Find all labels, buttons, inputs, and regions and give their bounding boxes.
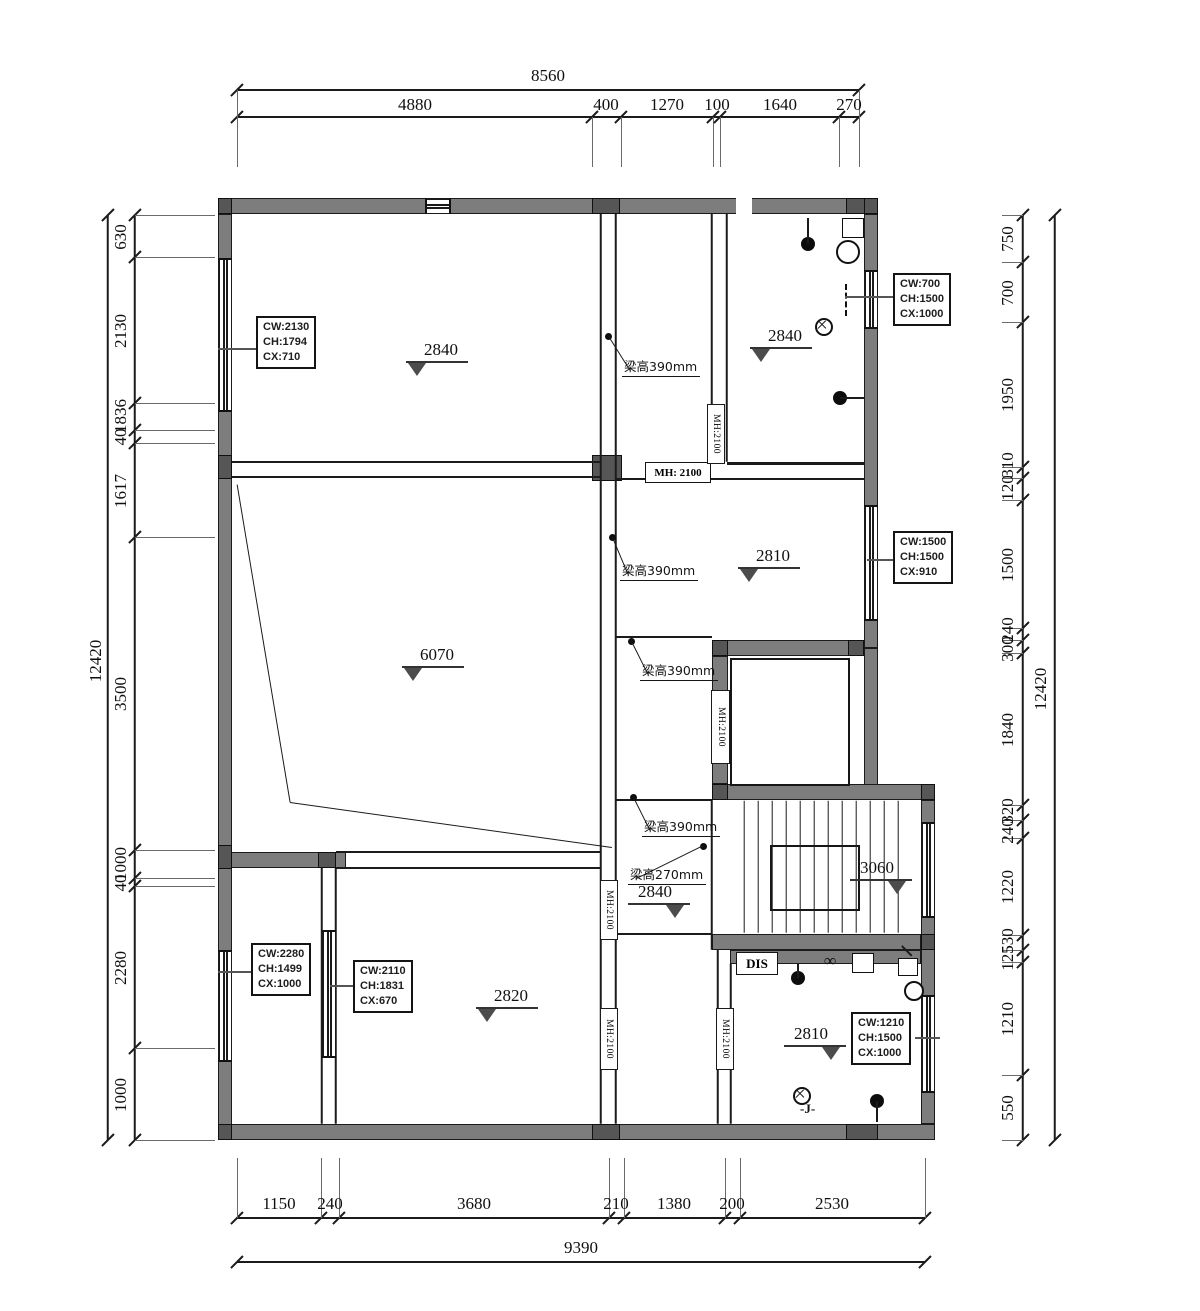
beam-height-label: 梁高270mm	[628, 864, 706, 885]
dim-line	[1022, 215, 1024, 1140]
window-line	[869, 272, 871, 327]
stair-tread	[827, 801, 828, 933]
window-spec-line: CH:1500	[900, 550, 946, 565]
door-height-label: MH:2100	[716, 1008, 734, 1070]
dis-label: DIS	[736, 952, 778, 975]
window-spec-line: CW:1500	[900, 535, 946, 550]
window-line	[427, 204, 449, 206]
window-line	[327, 932, 329, 1056]
window-line	[934, 997, 936, 1091]
window-spec-line: CW:1210	[858, 1016, 904, 1031]
level-marker: 2840	[628, 882, 690, 905]
window-line	[330, 932, 332, 1056]
stair-tread	[757, 801, 758, 933]
column	[848, 640, 864, 656]
elevator-shaft-inner	[730, 658, 850, 786]
window-line	[921, 997, 923, 1091]
column	[846, 1124, 878, 1140]
window-line	[926, 824, 928, 916]
window-spec-line: CX:1000	[900, 307, 944, 322]
level-value: 2810	[738, 546, 800, 569]
window-spec-line: CX:670	[360, 994, 406, 1009]
stair-landing	[770, 845, 860, 911]
j-label: -J-	[800, 1101, 815, 1117]
window-line	[877, 507, 879, 619]
door-height-label: MH:2100	[707, 404, 725, 464]
window-spec-line: CX:910	[900, 565, 946, 580]
level-triangle-icon	[478, 1009, 496, 1022]
column	[592, 1124, 620, 1140]
column	[318, 852, 336, 868]
dim-label: 700	[998, 253, 1018, 333]
stair-tread	[813, 801, 814, 933]
dim-line	[134, 215, 136, 1140]
dim-extension-line	[135, 215, 215, 216]
dim-label: 300	[998, 609, 1018, 689]
level-triangle-icon	[408, 363, 426, 376]
spec-leader-line	[218, 971, 251, 972]
wall-segment	[712, 784, 935, 800]
dim-label: 2280	[111, 928, 131, 1008]
light-stem	[797, 964, 799, 978]
level-triangle-icon	[404, 668, 422, 681]
window-line	[427, 207, 449, 209]
dim-label: 1840	[998, 690, 1018, 770]
beam-height-label: 梁高390mm	[622, 356, 700, 377]
dim-label: 40	[111, 843, 131, 923]
dim-line	[1054, 215, 1056, 1140]
dim-label: 1617	[111, 451, 131, 531]
level-value: 2810	[784, 1024, 846, 1047]
window	[322, 930, 336, 1058]
dim-label: 4880	[380, 95, 450, 115]
beam-height-label: 梁高390mm	[620, 560, 698, 581]
window-spec-line: CX:710	[263, 350, 309, 365]
window-line	[223, 260, 225, 410]
door-height-text: MH:2100	[720, 1019, 730, 1059]
window-line	[335, 932, 337, 1056]
dim-label: 400	[571, 95, 641, 115]
window-line	[218, 260, 220, 410]
dim-label: 3500	[111, 654, 131, 734]
dim-label: 630	[111, 197, 131, 277]
dim-label: 1640	[745, 95, 815, 115]
door-height-text: MH:2100	[604, 890, 614, 930]
door-height-text: MH:2100	[711, 414, 721, 454]
level-value: 3060	[850, 858, 912, 881]
dim-extension-line	[135, 878, 215, 879]
door-height-label: MH:2100	[711, 690, 730, 764]
level-value: 2840	[750, 326, 812, 349]
dim-label: 1950	[998, 355, 1018, 435]
bath-fixture	[852, 953, 874, 973]
spec-leader-line	[845, 296, 893, 297]
floor-plan-drawing: CW:2130CH:1794CX:710CW:700CH:1500CX:1000…	[0, 0, 1200, 1311]
wall-opening	[736, 198, 752, 214]
dim-label: 270	[814, 95, 884, 115]
bathroom-wall-line	[727, 462, 864, 465]
dim-label: 120	[998, 448, 1018, 528]
level-marker: 3060	[850, 858, 912, 881]
level-value: 2840	[628, 882, 690, 905]
window-line	[926, 997, 928, 1091]
window	[864, 505, 878, 621]
stair-tread	[743, 801, 744, 933]
window-line	[929, 997, 931, 1091]
level-marker: 2810	[784, 1024, 846, 1047]
dim-label: 100	[682, 95, 752, 115]
window-spec-line: CH:1500	[858, 1031, 904, 1046]
dim-label: 550	[998, 1068, 1018, 1148]
bath-fixture	[898, 958, 918, 976]
window-line	[921, 824, 923, 916]
dim-label: 1000	[111, 1055, 131, 1135]
column	[218, 1124, 232, 1140]
window-line	[427, 213, 449, 215]
dim-extension-line	[237, 117, 238, 167]
window-line	[223, 952, 225, 1060]
dim-extension-line	[237, 90, 238, 120]
window-line	[934, 824, 936, 916]
level-marker: 2810	[738, 546, 800, 569]
window-line	[929, 824, 931, 916]
wall-segment	[218, 198, 878, 214]
window-spec-line: CW:2110	[360, 964, 406, 979]
window-spec-line: CX:1000	[258, 977, 304, 992]
dim-extension-line	[839, 117, 840, 167]
partition-line	[600, 214, 602, 1124]
partition-line	[336, 851, 601, 853]
window-spec-box: CW:2110CH:1831CX:670	[353, 960, 413, 1013]
window-spec-line: CW:2130	[263, 320, 309, 335]
column	[218, 198, 232, 214]
dim-extension-line	[592, 117, 593, 167]
level-marker: 2840	[406, 340, 468, 363]
door-height-text: MH:2100	[716, 707, 726, 747]
dim-line	[237, 116, 859, 118]
window-spec-line: CW:2280	[258, 947, 304, 962]
dim-line	[237, 1261, 925, 1263]
dim-extension-line	[135, 1140, 215, 1141]
wall-segment	[218, 1124, 935, 1140]
light-stem	[876, 1101, 878, 1122]
window-spec-line: CH:1831	[360, 979, 406, 994]
column	[864, 198, 878, 214]
dim-extension-line	[925, 1158, 926, 1218]
dim-extension-line	[135, 443, 215, 444]
window	[921, 995, 935, 1093]
window-spec-box: CW:1500CH:1500CX:910	[893, 531, 953, 584]
dim-extension-line	[720, 117, 721, 167]
window-spec-line: CH:1794	[263, 335, 309, 350]
window-spec-box: CW:1210CH:1500CX:1000	[851, 1012, 911, 1065]
dim-line	[237, 89, 859, 91]
level-value: 6070	[402, 645, 464, 668]
dim-label: 3680	[439, 1194, 509, 1214]
dim-extension-line	[713, 117, 714, 167]
window	[218, 258, 232, 412]
dim-label: 2130	[111, 291, 131, 371]
dim-label: 9390	[536, 1238, 626, 1258]
wall-segment	[712, 934, 921, 950]
window	[218, 950, 232, 1062]
dim-extension-line	[859, 117, 860, 167]
stair-tread	[785, 801, 786, 933]
dim-extension-line	[135, 850, 215, 851]
dim-label: 12420	[86, 611, 106, 711]
column	[921, 784, 935, 800]
spec-leader-line	[330, 985, 353, 986]
beam-height-label: 梁高390mm	[640, 660, 718, 681]
window-line	[427, 198, 449, 200]
dim-extension-line	[135, 537, 215, 538]
level-value: 2820	[476, 986, 538, 1009]
window-line	[226, 260, 228, 410]
level-triangle-icon	[740, 569, 758, 582]
door-height-label: MH: 2100	[645, 462, 711, 483]
dim-extension-line	[135, 403, 215, 404]
level-triangle-icon	[666, 905, 684, 918]
wall-segment	[864, 648, 878, 800]
level-triangle-icon	[822, 1047, 840, 1060]
level-marker: 2820	[476, 986, 538, 1009]
window-line	[231, 260, 233, 410]
partition-line	[232, 476, 601, 478]
dim-line	[107, 215, 109, 1140]
dim-label: 200	[697, 1194, 767, 1214]
dim-extension-line	[135, 430, 215, 431]
window-spec-box: CW:700CH:1500CX:1000	[893, 273, 951, 326]
window-line	[231, 952, 233, 1060]
ceiling-diagonal-line	[236, 485, 290, 803]
dim-label: 2530	[797, 1194, 867, 1214]
level-marker: 2840	[750, 326, 812, 349]
light-stem	[807, 218, 809, 244]
dim-extension-line	[621, 117, 622, 167]
window-line	[322, 932, 324, 1056]
window-spec-box: CW:2130CH:1794CX:710	[256, 316, 316, 369]
dim-label: 240	[295, 1194, 365, 1214]
bath-fixture	[842, 218, 864, 238]
partition-line	[232, 461, 601, 463]
window-line	[218, 952, 220, 1060]
spec-leader-line	[867, 559, 893, 560]
washbasin-icon	[904, 981, 924, 1001]
window	[425, 198, 451, 214]
level-value: 2840	[406, 340, 468, 363]
dim-label: 8560	[503, 66, 593, 86]
column	[592, 198, 620, 214]
door-height-label: MH:2100	[600, 1008, 618, 1070]
ceiling-diagonal-line	[290, 802, 612, 848]
window-line	[864, 507, 866, 619]
dim-label: 1210	[998, 979, 1018, 1059]
window-spec-line: CH:1499	[258, 962, 304, 977]
level-marker: 6070	[402, 645, 464, 668]
window-line	[872, 507, 874, 619]
window-spec-line: CH:1500	[900, 292, 944, 307]
spec-leader-line	[915, 1037, 940, 1038]
window-line	[872, 272, 874, 327]
window-spec-box: CW:2280CH:1499CX:1000	[251, 943, 311, 996]
window-line	[869, 507, 871, 619]
dim-extension-line	[135, 257, 215, 258]
partition-line	[336, 867, 601, 869]
light-stem	[840, 397, 864, 399]
window-spec-line: CW:700	[900, 277, 944, 292]
column	[218, 455, 232, 479]
partition-line	[726, 214, 728, 462]
stair-tread	[799, 801, 800, 933]
dim-extension-line	[135, 886, 215, 887]
window	[864, 270, 878, 329]
dim-label: 12420	[1031, 639, 1051, 739]
column	[712, 640, 728, 656]
beam-height-label: 梁高390mm	[642, 816, 720, 837]
stair-tread	[771, 801, 772, 933]
window	[921, 822, 935, 918]
column	[921, 934, 935, 950]
pipe-riser-icon	[845, 284, 847, 316]
column	[218, 845, 232, 869]
window-spec-line: CX:1000	[858, 1046, 904, 1061]
dim-extension-line	[237, 1158, 238, 1218]
infinity-label: ∞	[824, 951, 836, 971]
window-line	[864, 272, 866, 327]
column	[712, 784, 728, 800]
level-triangle-icon	[752, 349, 770, 362]
washbasin-icon	[836, 240, 860, 264]
stair-tread	[841, 801, 842, 933]
door-height-text: MH:2100	[604, 1019, 614, 1059]
wall-segment	[712, 640, 864, 656]
window-line	[877, 272, 879, 327]
dim-extension-line	[135, 1048, 215, 1049]
window-line	[226, 952, 228, 1060]
level-triangle-icon	[888, 881, 906, 894]
spec-leader-line	[218, 348, 256, 349]
door-height-label: MH:2100	[600, 880, 618, 940]
